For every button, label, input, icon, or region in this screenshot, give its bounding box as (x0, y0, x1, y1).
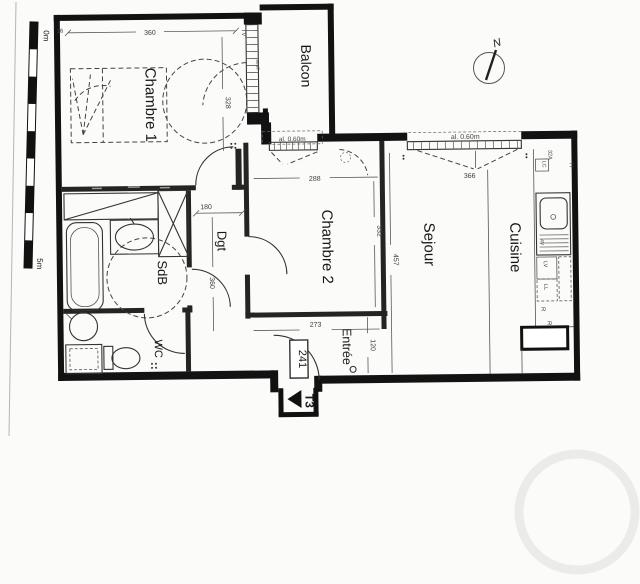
appliance-r2-label: R (545, 321, 551, 326)
dim-360-label: 360 (144, 30, 156, 37)
window-sejour-sill-label: al. 0.60m (451, 134, 480, 141)
scanned-floor-plan-page: 0m 5m (0, 0, 640, 584)
sejour-room: Sejour (420, 223, 438, 267)
room-label-cuisine: Cuisine (506, 222, 524, 272)
scale-end-label: 5m (35, 258, 44, 270)
dim-120-label: 120 (369, 339, 376, 351)
dim-457-label: 457 (392, 254, 399, 266)
room-label-dgt: Dgt (214, 231, 229, 252)
kitchen-wall-jog (522, 327, 568, 350)
room-label-chambre1: Chambre 1 (141, 68, 159, 142)
room-label-sejour: Sejour (420, 223, 438, 267)
appliance-r1-label: R (539, 307, 545, 312)
kitchen-sink-label: 4V (538, 239, 544, 246)
dim-328-label: 328 (224, 97, 231, 109)
dim-332-label: 332 (375, 225, 382, 237)
dim-180-label: 180 (200, 204, 212, 211)
door-number-label: 241 (296, 350, 308, 369)
dim-273-label: 273 (310, 322, 322, 329)
dim-360b-label: 360 (208, 277, 215, 289)
apartment-type-label: T3 (302, 394, 316, 409)
appliance-lv-label: LV (542, 261, 548, 268)
kitchen-amps-label: 32A (546, 150, 552, 160)
dim-16-label: 16 (57, 29, 64, 35)
threshold-label: seuil (254, 59, 260, 69)
room-label-entree: Entrée (340, 328, 354, 365)
kitchen-hood-label: H (568, 163, 574, 167)
paper-background (0, 0, 640, 584)
balcony-detail (263, 108, 268, 113)
window-chambre2-sill-label: al. 0.60m (279, 136, 306, 143)
tv-label: TV (240, 29, 246, 37)
appliance-ll-label: LL (542, 284, 548, 290)
dim-366: 366 (464, 173, 476, 180)
room-label-wc: WC (152, 340, 164, 359)
floor-plan-svg: 0m 5m (0, 0, 640, 584)
door-number-box: 241 (290, 340, 308, 378)
kitchen-lc-label: LC (541, 161, 547, 168)
dim-288-label: 288 (309, 176, 321, 183)
scale-start-label: 0m (42, 30, 51, 42)
room-label-chambre2: Chambre 2 (318, 209, 336, 283)
room-label-balcon: Balcon (298, 44, 315, 87)
room-label-sdb: SdB (155, 260, 170, 285)
cuisine-room: Cuisine (506, 222, 524, 272)
